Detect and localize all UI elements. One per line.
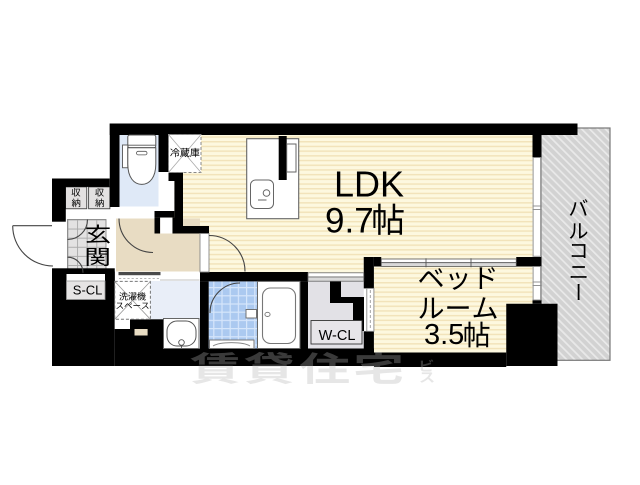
- svg-text:LDK: LDK: [334, 164, 404, 205]
- svg-text:3.5: 3.5: [424, 319, 464, 351]
- svg-text:9.7: 9.7: [325, 202, 374, 241]
- svg-text:W-CL: W-CL: [319, 328, 356, 344]
- svg-text:S-CL: S-CL: [73, 283, 103, 298]
